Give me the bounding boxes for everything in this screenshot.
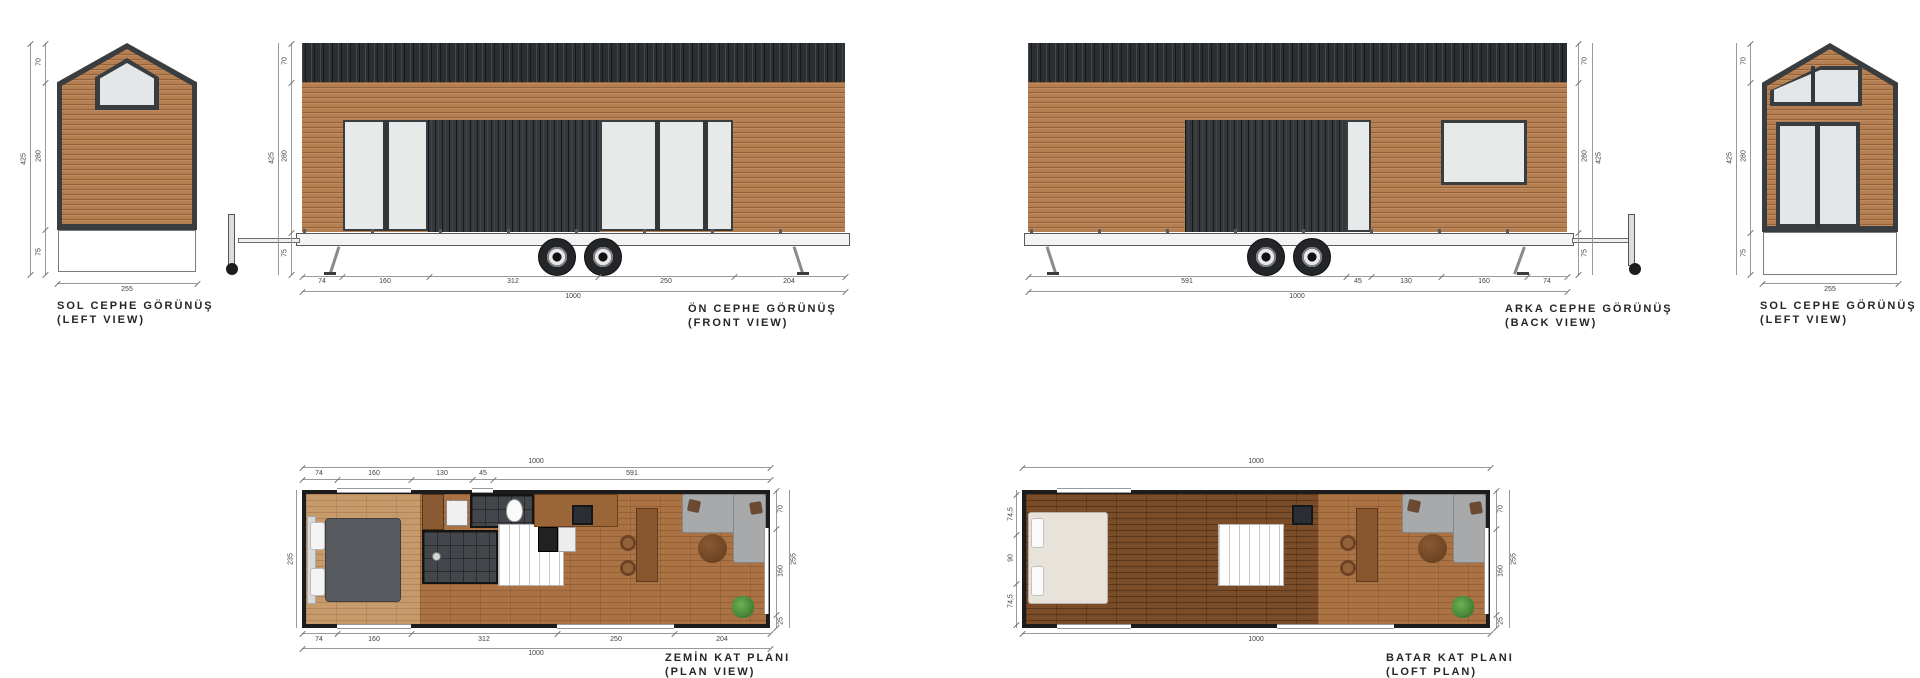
dim-label: 74: [315, 636, 323, 643]
view-title-line2: (BACK VIEW): [1505, 316, 1673, 330]
drawing-sheet: 425 70 280 75 255 SOL CEPHE GÖRÜNÜŞ (LEF…: [0, 0, 1920, 678]
dim-line: [1736, 43, 1737, 275]
bed-pillow: [310, 568, 325, 596]
toilet: [506, 499, 523, 522]
sofa-pillow: [1469, 501, 1483, 515]
support-foot: [1517, 272, 1529, 275]
dim-line: [296, 490, 297, 628]
dim-label: 1000: [528, 650, 544, 657]
trailer-base-box: [58, 230, 196, 272]
jack-wheel: [226, 263, 238, 275]
view-title-line2: (LEFT VIEW): [1760, 313, 1917, 327]
dim-label: 280: [36, 150, 43, 162]
dim-label: 70: [282, 57, 289, 65]
view-title: SOL CEPHE GÖRÜNÜŞ (LEFT VIEW): [1760, 299, 1917, 328]
coffee-table: [1418, 534, 1447, 563]
view-title-line1: ZEMİN KAT PLANI: [665, 651, 790, 665]
dim-label: 280: [1582, 150, 1589, 162]
dim-line: [302, 276, 845, 277]
wheel: [1293, 238, 1331, 276]
jack-wheel: [1629, 263, 1641, 275]
dim-label: 250: [610, 636, 622, 643]
dim-label: 280: [1741, 150, 1748, 162]
wheel: [1247, 238, 1285, 276]
window-opening: [1057, 488, 1131, 493]
dim-line: [278, 43, 279, 275]
sofa-pillow: [1407, 499, 1421, 513]
window-b-mullion: [655, 120, 660, 231]
roof-band: [1028, 43, 1567, 82]
dim-label: 70: [1582, 57, 1589, 65]
view-title: ARKA CEPHE GÖRÜNÜŞ (BACK VIEW): [1505, 302, 1673, 331]
view-title-line1: SOL CEPHE GÖRÜNÜŞ: [57, 299, 214, 313]
dim-label: 70: [1741, 57, 1748, 65]
dim-label: 255: [791, 553, 798, 565]
dining-stool: [620, 560, 636, 576]
dim-label: 70: [1498, 505, 1505, 513]
support-foot: [1047, 272, 1059, 275]
support-foot: [797, 272, 809, 275]
dim-line: [302, 648, 770, 649]
dim-label: 74: [318, 278, 326, 285]
dim-label: 425: [269, 152, 276, 164]
dim-label: 75: [282, 249, 289, 257]
dim-label: 90: [1008, 554, 1015, 562]
bed-mattress: [325, 518, 401, 602]
dining-stool: [1340, 560, 1356, 576]
view-title: SOL CEPHE GÖRÜNÜŞ (LEFT VIEW): [57, 299, 214, 328]
view-title-line2: (PLAN VIEW): [665, 665, 790, 678]
plant: [1452, 596, 1474, 618]
dim-label: 1000: [1289, 293, 1305, 300]
trailer-drawbar: [1572, 238, 1634, 243]
dim-line: [302, 633, 770, 634]
dim-line: [1022, 467, 1490, 468]
dim-line: [1592, 43, 1593, 275]
view-title-line1: SOL CEPHE GÖRÜNÜŞ: [1760, 299, 1917, 313]
support-foot: [324, 272, 336, 275]
cooktop: [538, 527, 558, 552]
window-opening: [337, 488, 411, 493]
dim-label: 160: [778, 565, 785, 577]
view-title-line1: BATAR KAT PLANI: [1386, 651, 1514, 665]
view-title-line2: (LEFT VIEW): [57, 313, 214, 327]
dim-label: 1000: [1248, 458, 1264, 465]
window-b-mullion: [703, 120, 708, 231]
dim-label: 425: [1596, 152, 1603, 164]
dim-label: 591: [1181, 278, 1193, 285]
dining-table: [636, 508, 658, 582]
loft-bed-pillow: [1031, 566, 1044, 596]
dim-line: [1028, 276, 1567, 277]
window-opening: [557, 624, 674, 629]
dim-label: 280: [282, 150, 289, 162]
dim-line: [1028, 291, 1567, 292]
gable-upper-window-mullion: [1811, 66, 1815, 106]
dim-label: 74: [1543, 278, 1551, 285]
jack-post: [228, 214, 235, 266]
dim-label: 255: [1824, 286, 1836, 293]
dim-label: 591: [626, 470, 638, 477]
kitchen-counter-white: [558, 527, 576, 552]
dining-table: [1356, 508, 1378, 582]
window-opening: [764, 528, 769, 614]
wheel: [584, 238, 622, 276]
dim-label: 204: [783, 278, 795, 285]
dim-line: [45, 43, 46, 275]
dim-label: 425: [21, 153, 28, 165]
dim-label: 75: [1741, 249, 1748, 257]
bathroom-tile-wc: [470, 494, 534, 528]
wheel: [538, 238, 576, 276]
window-opening: [337, 624, 411, 629]
gable-lower-window-mullion: [1815, 122, 1820, 228]
dim-label: 25: [1498, 617, 1505, 625]
kitchen-appliance: [572, 505, 593, 525]
dim-label: 70: [778, 505, 785, 513]
dark-slat-section: [1185, 120, 1346, 232]
dim-line: [57, 283, 197, 284]
dim-line: [1762, 283, 1898, 284]
dim-label: 255: [1511, 553, 1518, 565]
dim-line: [1016, 490, 1017, 628]
dim-label: 1000: [565, 293, 581, 300]
view-title: ZEMİN KAT PLANI (PLAN VIEW): [665, 651, 790, 678]
dim-label: 1000: [528, 458, 544, 465]
view-title-line1: ÖN CEPHE GÖRÜNÜŞ: [688, 302, 837, 316]
dim-label: 74: [315, 470, 323, 477]
dim-line: [302, 467, 770, 468]
roof-band: [302, 43, 845, 82]
window-opening: [1484, 528, 1489, 614]
dim-label: 130: [1400, 278, 1412, 285]
view-title-line2: (LOFT PLAN): [1386, 665, 1514, 678]
dim-line: [291, 43, 292, 275]
trailer-base-box: [1763, 232, 1897, 275]
dim-label: 425: [1727, 152, 1734, 164]
dim-label: 312: [507, 278, 519, 285]
bathroom-sink: [446, 500, 468, 526]
jack-post: [1628, 214, 1635, 266]
dim-label: 74,5: [1008, 507, 1015, 521]
support-leg: [329, 246, 341, 275]
dim-label: 70: [36, 58, 43, 66]
dim-label: 45: [1354, 278, 1362, 285]
sofa-pillow: [687, 499, 701, 513]
kitchen-appliance: [1292, 505, 1313, 525]
window-b: [600, 120, 733, 231]
dim-label: 160: [379, 278, 391, 285]
stairs: [1218, 524, 1284, 586]
dim-label: 1000: [1248, 636, 1264, 643]
dining-stool: [620, 535, 636, 551]
view-title-line2: (FRONT VIEW): [688, 316, 837, 330]
dim-label: 74,5: [1008, 594, 1015, 608]
door-opening: [472, 488, 493, 493]
wardrobe: [422, 494, 444, 530]
dim-line: [302, 479, 770, 480]
dark-slat-section: [428, 120, 600, 232]
dim-label: 312: [478, 636, 490, 643]
loft-bed-pillow: [1031, 518, 1044, 548]
dim-label: 75: [36, 248, 43, 256]
entry-door: [1346, 120, 1371, 232]
plant: [732, 596, 754, 618]
dim-label: 160: [1498, 565, 1505, 577]
dim-line: [30, 43, 31, 275]
dim-label: 160: [1478, 278, 1490, 285]
bed-pillow: [310, 522, 325, 550]
view-title: ÖN CEPHE GÖRÜNÜŞ (FRONT VIEW): [688, 302, 837, 331]
dim-label: 25: [778, 617, 785, 625]
view-title: BATAR KAT PLANI (LOFT PLAN): [1386, 651, 1514, 678]
window-opening: [1277, 624, 1394, 629]
coffee-table: [698, 534, 727, 563]
trailer-frame: [296, 233, 850, 246]
dim-line: [1750, 43, 1751, 275]
dim-label: 45: [479, 470, 487, 477]
window-opening: [1057, 624, 1131, 629]
dim-line: [302, 291, 845, 292]
dim-label: 130: [436, 470, 448, 477]
support-leg: [793, 246, 805, 275]
dim-label: 204: [716, 636, 728, 643]
dim-label: 75: [1582, 249, 1589, 257]
dim-line: [1578, 43, 1579, 275]
back-window: [1441, 120, 1527, 185]
dim-label: 250: [660, 278, 672, 285]
dim-label: 235: [288, 553, 295, 565]
dim-label: 160: [368, 636, 380, 643]
view-title-line1: ARKA CEPHE GÖRÜNÜŞ: [1505, 302, 1673, 316]
dim-line: [1022, 633, 1490, 634]
sofa-pillow: [749, 501, 763, 515]
window-a-mullion: [383, 120, 389, 231]
dining-stool: [1340, 535, 1356, 551]
dim-label: 255: [121, 286, 133, 293]
support-leg: [1046, 246, 1058, 275]
support-leg: [1513, 246, 1526, 274]
dim-label: 160: [368, 470, 380, 477]
shower-head: [432, 552, 441, 561]
